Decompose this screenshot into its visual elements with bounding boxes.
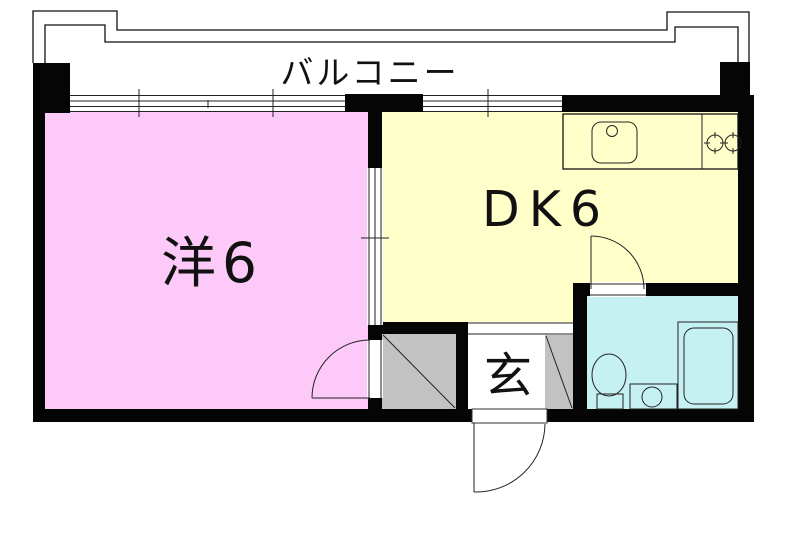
- balcony: バルコニー: [33, 11, 749, 92]
- dk-room-label: DK6: [482, 181, 610, 238]
- wall-top-left-block: [33, 63, 70, 113]
- wall-partition-bottom: [368, 398, 382, 409]
- wall-entrance-top: [378, 322, 468, 334]
- western-room-label: 洋6: [161, 231, 263, 295]
- floorplan-canvas: バルコニー: [0, 0, 795, 540]
- window-band: [423, 95, 562, 112]
- closet-right: [545, 335, 573, 409]
- wall-window-pillar: [345, 94, 423, 112]
- wall-partition-top: [368, 98, 382, 168]
- step-band: [468, 322, 573, 335]
- wall-kitchen-top: [562, 95, 738, 112]
- closet-left: [382, 334, 456, 409]
- entry-door: [472, 409, 547, 492]
- entry-doorway: [472, 409, 547, 423]
- bathroom-floor: [587, 296, 738, 409]
- wall-entrance-pillar: [456, 334, 468, 409]
- wall-bath-left: [573, 285, 587, 409]
- entrance-step: [468, 322, 573, 335]
- wall-bottom: [33, 409, 754, 422]
- wall-right: [738, 95, 754, 422]
- entrance-label: 玄: [484, 348, 532, 404]
- balcony-label: バルコニー: [280, 53, 459, 92]
- wall-left: [33, 63, 45, 422]
- room-fills: [45, 111, 738, 409]
- door-swing-arc: [474, 424, 545, 492]
